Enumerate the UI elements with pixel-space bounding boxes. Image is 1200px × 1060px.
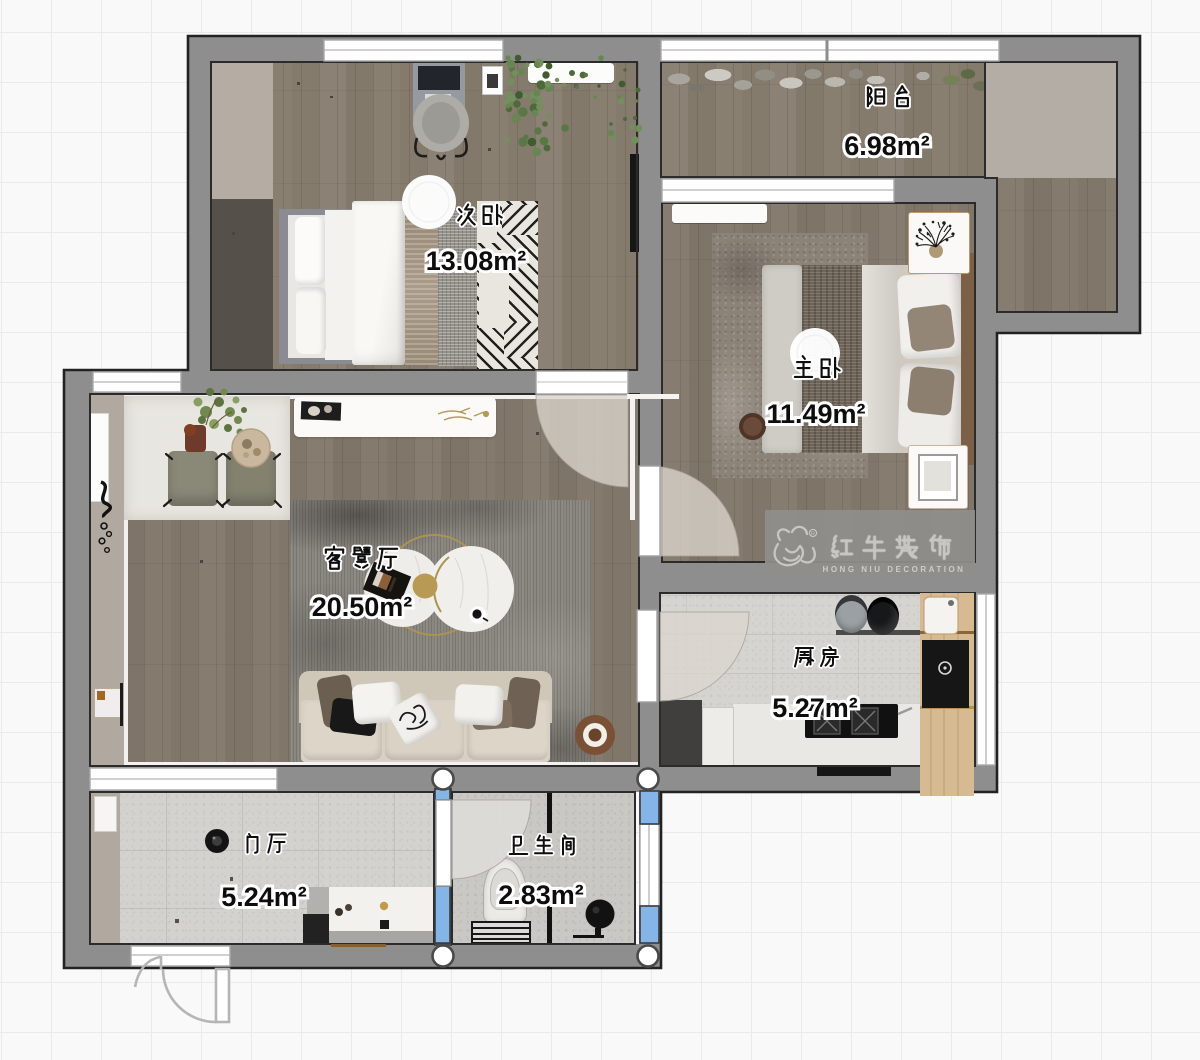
svg-text:20.50m²: 20.50m² bbox=[312, 592, 413, 622]
svg-text:13.08m²: 13.08m² bbox=[426, 246, 527, 276]
svg-text:11.49m²: 11.49m² bbox=[766, 399, 865, 429]
svg-text:6.98m²: 6.98m² bbox=[844, 131, 930, 161]
svg-text:5.27m²: 5.27m² bbox=[772, 693, 858, 723]
svg-text:5.24m²: 5.24m² bbox=[221, 882, 307, 912]
svg-text:HONG NIU DECORATION: HONG NIU DECORATION bbox=[823, 565, 966, 574]
svg-text:2.83m²: 2.83m² bbox=[498, 880, 584, 910]
svg-text:R: R bbox=[811, 532, 815, 538]
